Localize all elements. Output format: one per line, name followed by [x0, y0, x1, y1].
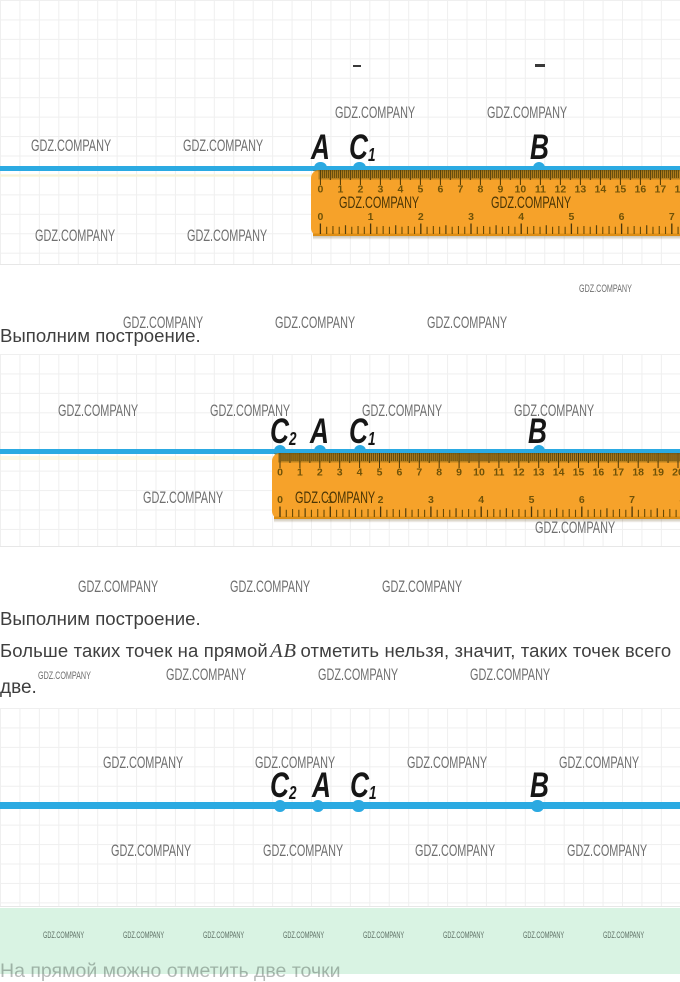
svg-text:16: 16 — [593, 467, 605, 479]
svg-text:17: 17 — [612, 467, 624, 479]
svg-text:11: 11 — [493, 467, 504, 479]
svg-text:20: 20 — [672, 467, 680, 479]
svg-text:19: 19 — [652, 467, 664, 479]
svg-text:18: 18 — [632, 467, 644, 479]
svg-text:0: 0 — [317, 184, 323, 196]
svg-text:16: 16 — [635, 184, 647, 196]
svg-text:4: 4 — [518, 211, 524, 223]
svg-text:5: 5 — [529, 494, 535, 506]
svg-text:2: 2 — [317, 467, 323, 479]
svg-text:1: 1 — [297, 467, 303, 479]
svg-text:15: 15 — [615, 184, 627, 196]
svg-text:18: 18 — [675, 184, 680, 196]
svg-text:4: 4 — [478, 494, 484, 506]
svg-text:7: 7 — [457, 184, 463, 196]
svg-text:17: 17 — [655, 184, 667, 196]
svg-text:6: 6 — [396, 467, 402, 479]
svg-text:9: 9 — [456, 467, 462, 479]
svg-text:8: 8 — [436, 467, 442, 479]
svg-text:3: 3 — [428, 494, 434, 506]
svg-text:5: 5 — [377, 467, 383, 479]
svg-text:12: 12 — [513, 467, 525, 479]
svg-text:6: 6 — [619, 211, 625, 223]
svg-text:13: 13 — [575, 184, 587, 196]
svg-text:8: 8 — [477, 184, 483, 196]
svg-text:14: 14 — [595, 184, 607, 196]
svg-text:6: 6 — [579, 494, 585, 506]
svg-text:1: 1 — [368, 211, 374, 223]
svg-text:10: 10 — [473, 467, 485, 479]
svg-text:13: 13 — [533, 467, 545, 479]
svg-text:14: 14 — [553, 467, 565, 479]
svg-text:15: 15 — [573, 467, 585, 479]
svg-text:0: 0 — [317, 211, 323, 223]
svg-text:5: 5 — [568, 211, 574, 223]
svg-text:3: 3 — [468, 211, 474, 223]
svg-text:3: 3 — [337, 467, 343, 479]
svg-text:6: 6 — [437, 184, 443, 196]
svg-text:0: 0 — [277, 467, 283, 479]
svg-text:4: 4 — [357, 467, 363, 479]
svg-text:2: 2 — [418, 211, 424, 223]
svg-text:7: 7 — [416, 467, 422, 479]
svg-text:0: 0 — [277, 494, 283, 506]
svg-text:7: 7 — [629, 494, 635, 506]
svg-text:7: 7 — [669, 211, 675, 223]
